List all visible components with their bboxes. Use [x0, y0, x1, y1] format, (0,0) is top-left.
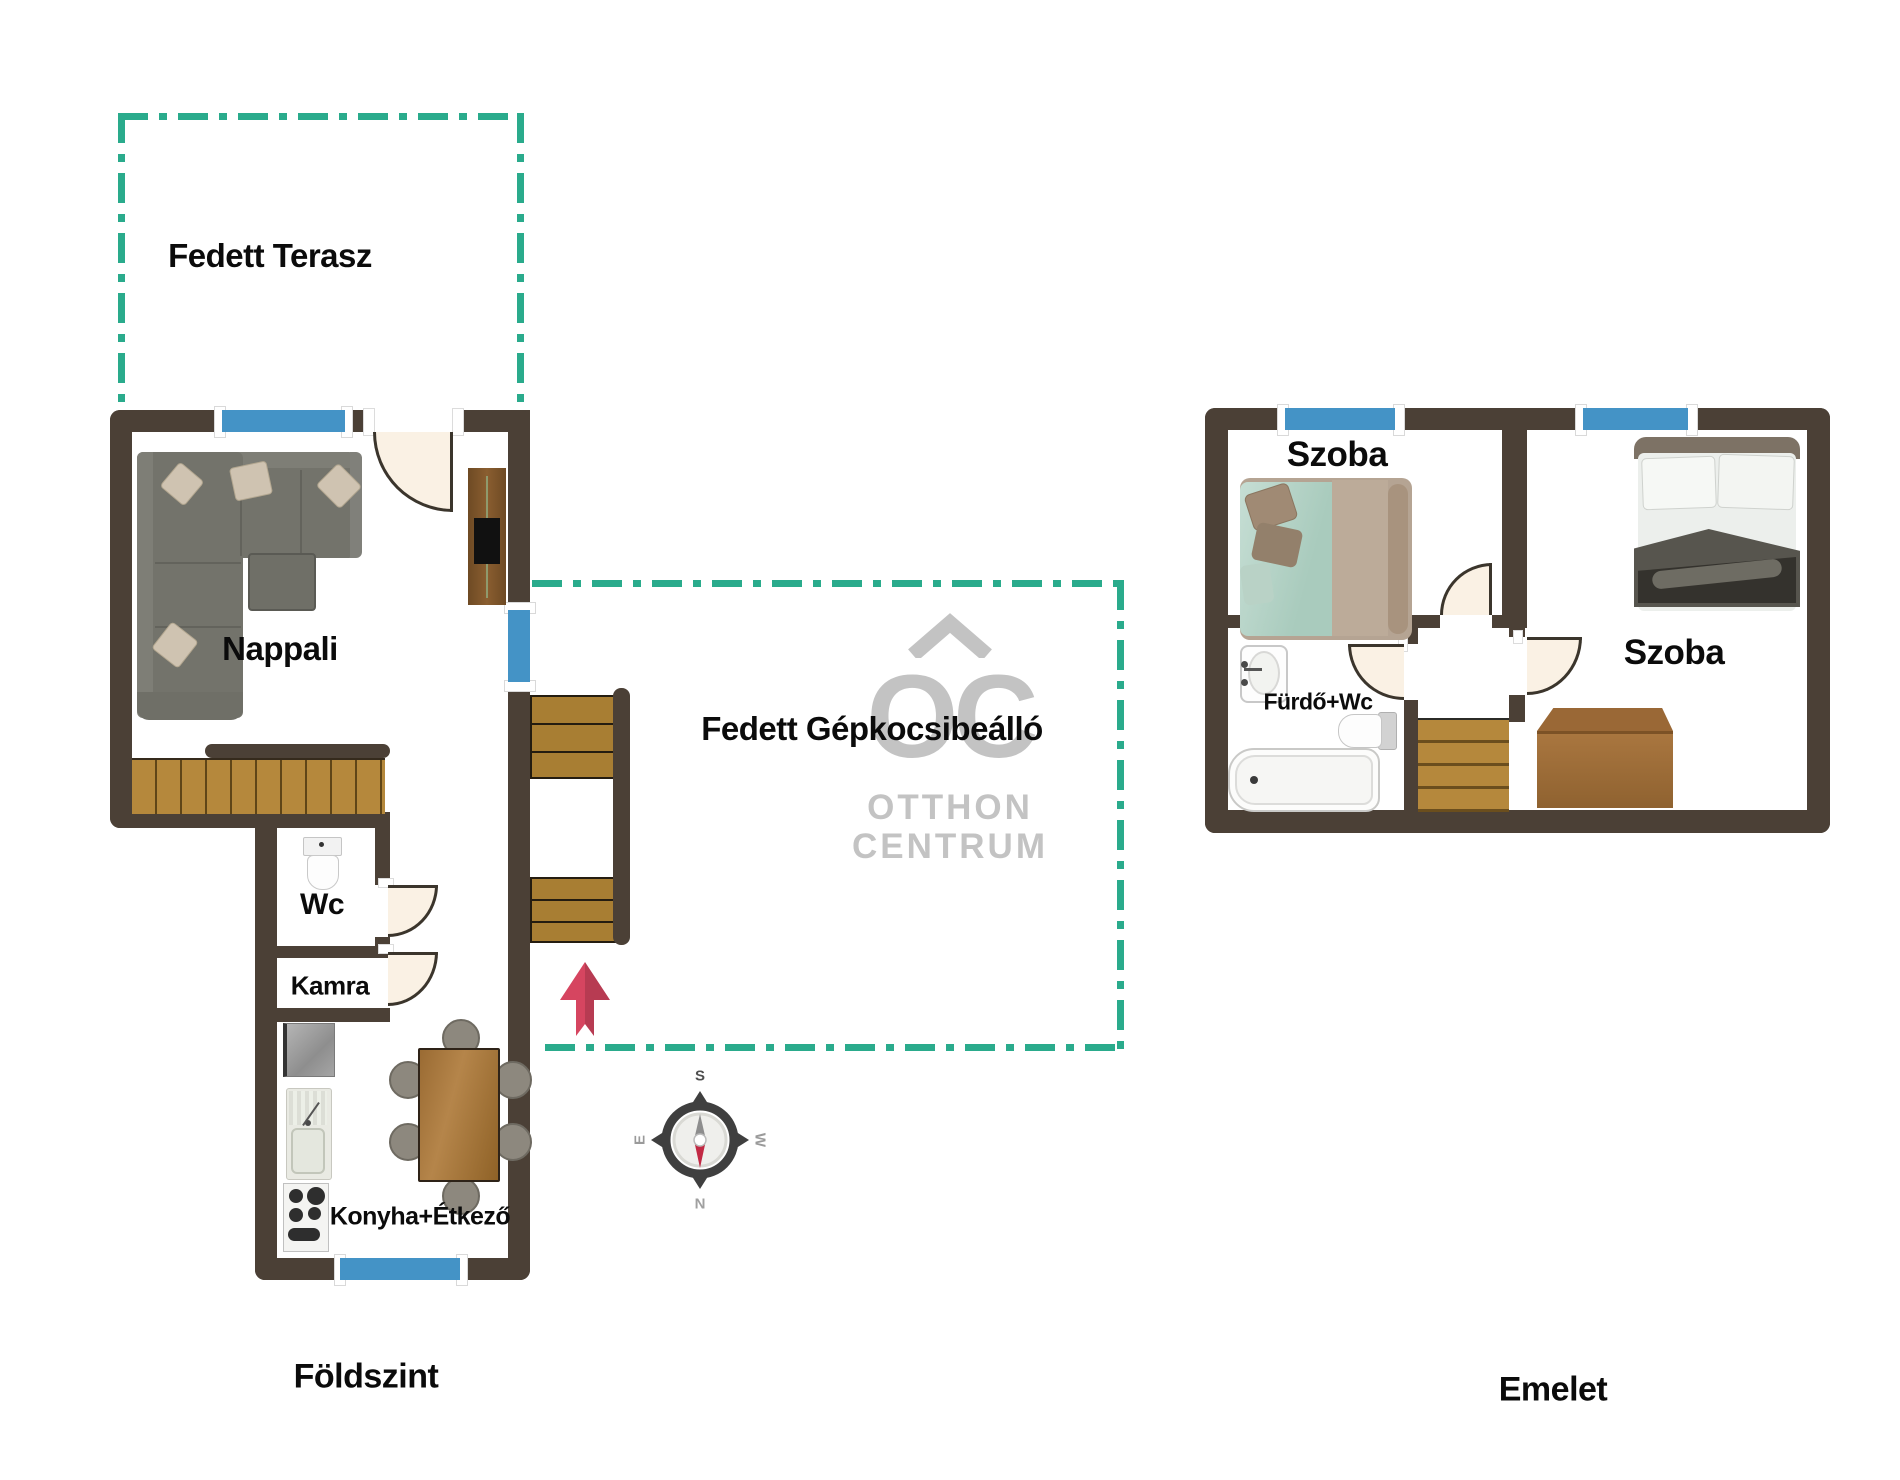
wall [508, 682, 530, 1280]
stairs-upper-floor [1418, 718, 1509, 812]
door-jamb [1513, 630, 1523, 644]
ground-floor-title: Földszint [294, 1358, 439, 1397]
refrigerator [283, 1023, 335, 1077]
wall [1205, 408, 1228, 833]
wall [1502, 430, 1527, 627]
wall [1395, 408, 1583, 430]
sink-basin [291, 1128, 325, 1174]
pantry-label: Kamra [291, 971, 369, 1002]
bed-pillow [1717, 454, 1795, 511]
carport-outline-bottom [545, 1044, 1124, 1051]
compass-south: S [695, 1068, 705, 1085]
living-room-label: Nappali [222, 630, 338, 668]
wall [110, 812, 390, 828]
dining-table [418, 1048, 500, 1182]
logo-line1: OTTHON [867, 788, 1033, 828]
wall [110, 410, 132, 828]
window [222, 410, 345, 432]
wall [277, 946, 390, 958]
faucet-icon [1241, 679, 1248, 686]
stair-side-wall [613, 688, 630, 945]
wc-door [388, 885, 438, 937]
sofa-seam [155, 562, 241, 564]
burner-icon [289, 1189, 303, 1203]
griddle-icon [288, 1228, 320, 1241]
bed-roll-pillow [1388, 484, 1408, 634]
burner-icon [289, 1208, 303, 1222]
wall [460, 1258, 530, 1280]
burner-icon [308, 1207, 321, 1220]
stairs-ground-floor [132, 758, 385, 814]
bed-pillow [1239, 562, 1274, 606]
terrace-outline-left [118, 113, 125, 414]
bed-mattress [1332, 480, 1388, 636]
compass-east: E [632, 1135, 649, 1145]
sofa-armrest [350, 452, 362, 558]
window [340, 1258, 460, 1280]
entrance-arrow-icon [558, 960, 612, 1038]
carport-outline-top [532, 580, 1124, 587]
terrace-door [373, 432, 453, 512]
stair-rail-wall [205, 744, 390, 758]
coffee-table [248, 553, 316, 611]
bedroom2-label: Szoba [1624, 633, 1725, 673]
bathroom-label: Fürdő+Wc [1263, 689, 1372, 716]
bed-pillow [1641, 456, 1717, 511]
wall [1509, 695, 1525, 722]
wall [375, 828, 390, 885]
sofa-end [137, 692, 243, 720]
wall [255, 812, 277, 1280]
window [508, 610, 530, 682]
compass-rose-icon [648, 1088, 752, 1192]
burner-icon [307, 1187, 325, 1205]
faucet-icon [1241, 661, 1248, 668]
wc-label: Wc [300, 888, 344, 922]
tv-icon [474, 518, 500, 564]
bedroom1-door [1440, 563, 1492, 615]
bathtub-drain [1250, 776, 1258, 784]
window [1285, 408, 1395, 430]
wall [508, 410, 530, 610]
terrace-outline-right [517, 113, 524, 414]
wall [1404, 700, 1418, 810]
window [1583, 408, 1688, 430]
exterior-stairs-upper [530, 695, 616, 779]
wall [255, 1258, 340, 1280]
wall [1807, 408, 1830, 833]
bedroom1-label: Szoba [1287, 435, 1388, 475]
terrace-label: Fedett Terasz [168, 237, 372, 275]
wall [1205, 810, 1830, 833]
carport-label: Fedett Gépkocsibeálló [701, 710, 1043, 748]
kitchen-label: Konyha+Étkező [330, 1203, 510, 1232]
wardrobe [1537, 708, 1673, 808]
exterior-stairs-lower [530, 877, 616, 943]
floor-plan-canvas: Fedett Terasz OC OTTHON CENTRUM [0, 0, 1900, 1480]
terrace-outline-top [118, 113, 524, 120]
toilet-button [319, 842, 324, 847]
logo-line2: CENTRUM [852, 827, 1048, 867]
compass-west: W [752, 1133, 769, 1147]
carport-outline-right [1117, 580, 1124, 1051]
toilet-bowl [307, 855, 339, 890]
compass-north: N [695, 1196, 706, 1213]
pantry-door [388, 952, 438, 1006]
upper-floor-title: Emelet [1499, 1371, 1608, 1410]
faucet-spout [1244, 668, 1262, 671]
door-jamb [452, 408, 464, 436]
wall [277, 1008, 390, 1022]
toilet-bowl [1338, 714, 1382, 748]
bedroom2-door [1527, 637, 1582, 695]
sofa-seam [300, 470, 302, 556]
